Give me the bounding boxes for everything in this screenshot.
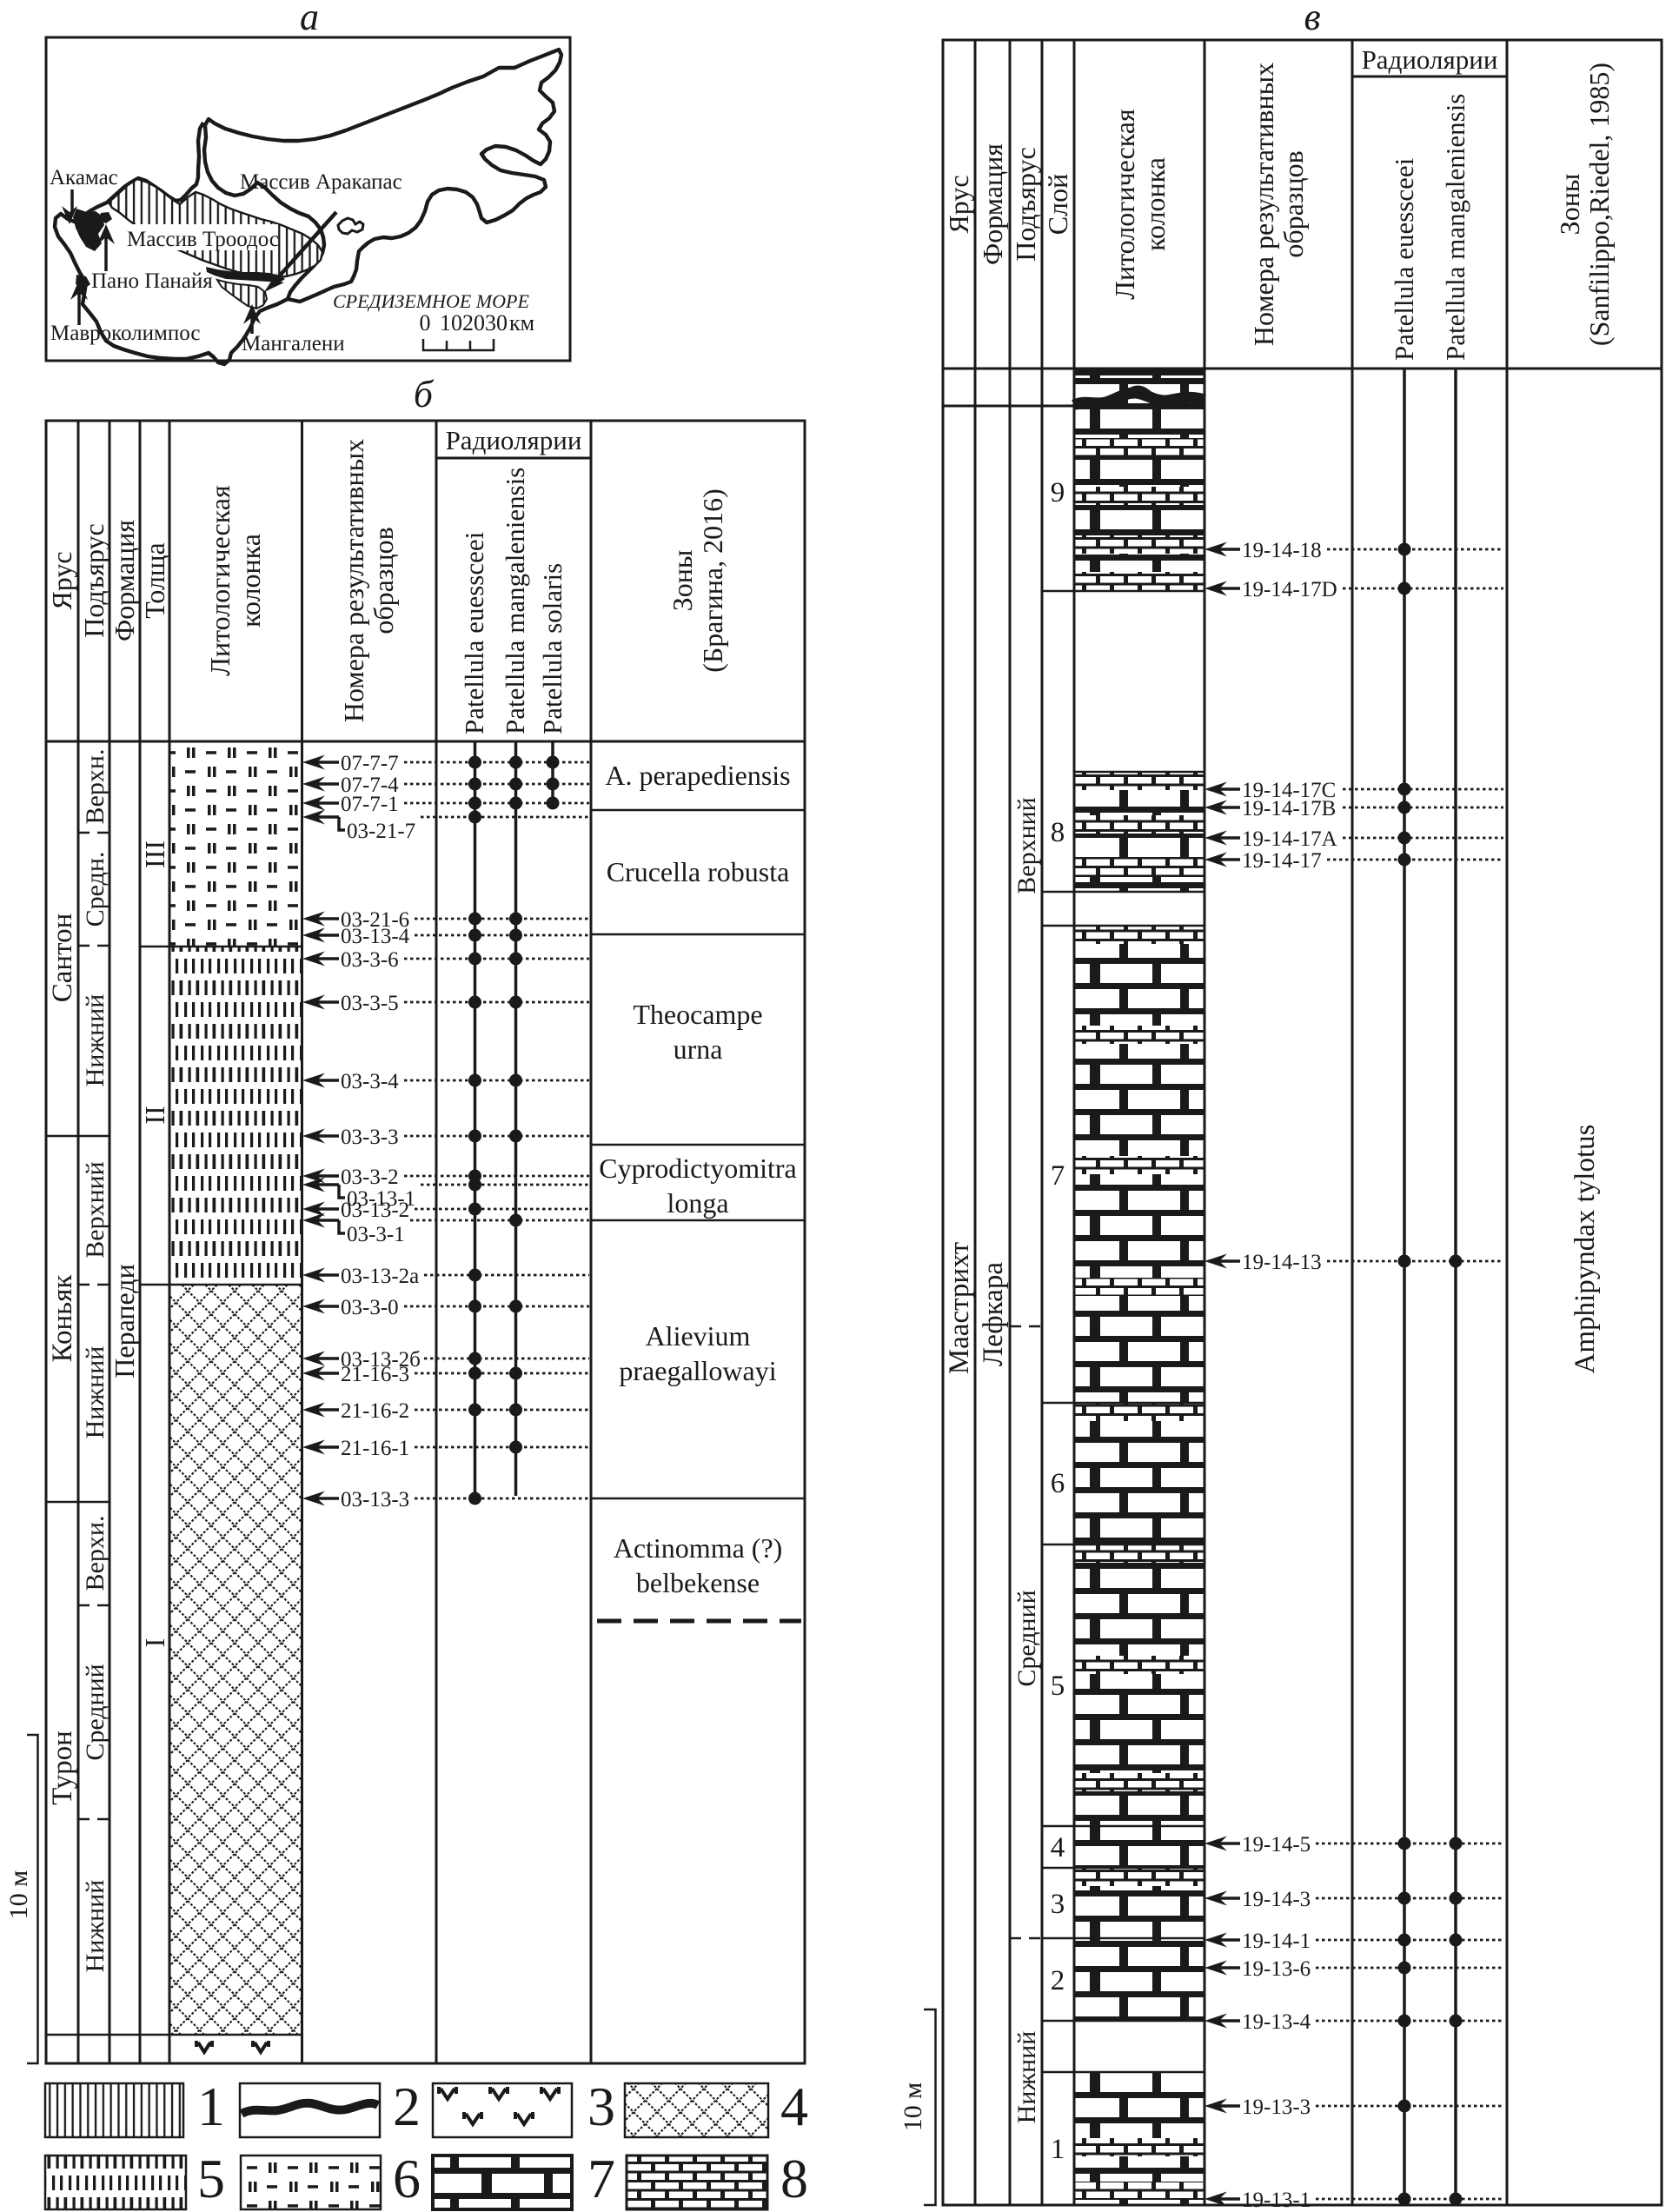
svg-text:Номера результативных: Номера результативных — [338, 439, 369, 722]
svg-text:II: II — [139, 1106, 170, 1124]
svg-text:Массив Аракапас: Массив Аракапас — [240, 170, 402, 194]
svg-text:19-14-5: 19-14-5 — [1242, 1833, 1311, 1857]
svg-text:Средний: Средний — [81, 1664, 109, 1760]
svg-text:Amphipyndax tylotus: Amphipyndax tylotus — [1569, 1125, 1601, 1374]
svg-text:Зоны: Зоны — [1554, 174, 1585, 236]
svg-text:03-3-4: 03-3-4 — [341, 1070, 399, 1093]
svg-text:1: 1 — [1051, 2134, 1065, 2165]
svg-text:19-14-17D: 19-14-17D — [1242, 578, 1337, 601]
svg-text:СРЕДИЗЕМНОЕ МОРЕ: СРЕДИЗЕМНОЕ МОРЕ — [333, 290, 529, 312]
svg-text:7: 7 — [587, 2148, 615, 2209]
svg-text:Пано Панайя: Пано Панайя — [91, 269, 213, 293]
svg-text:Мангалени: Мангалени — [242, 332, 345, 355]
svg-text:5: 5 — [197, 2148, 225, 2209]
svg-text:Верхний: Верхний — [1012, 797, 1041, 894]
svg-text:0: 0 — [420, 310, 431, 335]
svg-text:belbekense: belbekense — [636, 1567, 760, 1598]
svg-text:б: б — [414, 373, 435, 415]
svg-text:9: 9 — [1051, 477, 1065, 508]
svg-text:Верхи.: Верхи. — [81, 1516, 109, 1591]
svg-text:4: 4 — [780, 2076, 808, 2137]
svg-text:Литологическая: Литологическая — [204, 485, 236, 676]
svg-text:Theocampe: Theocampe — [633, 999, 762, 1030]
svg-text:21-16-1: 21-16-1 — [341, 1437, 409, 1460]
svg-text:Patellula euessceei: Patellula euessceei — [459, 531, 489, 734]
svg-text:03-13-2а: 03-13-2а — [341, 1265, 419, 1288]
svg-text:Лефкара: Лефкара — [978, 1262, 1009, 1366]
svg-text:Формация: Формация — [977, 143, 1008, 265]
svg-text:Перапеди: Перапеди — [109, 1264, 140, 1378]
svg-text:Верхн.: Верхн. — [81, 749, 109, 825]
svg-text:19-14-17A: 19-14-17A — [1242, 827, 1337, 851]
svg-text:Верхний: Верхний — [81, 1161, 109, 1259]
svg-text:Подъярус: Подъярус — [78, 523, 109, 638]
svg-text:Коньяк: Коньяк — [47, 1274, 78, 1363]
svg-text:5: 5 — [1051, 1671, 1065, 1702]
svg-text:(Sanfilippo,Riedel, 1985): (Sanfilippo,Riedel, 1985) — [1583, 63, 1615, 346]
svg-text:колонка: колонка — [1139, 157, 1171, 251]
svg-text:19-14-1: 19-14-1 — [1242, 1930, 1311, 1953]
svg-text:образцов: образцов — [1277, 150, 1309, 257]
svg-text:6: 6 — [1051, 1468, 1065, 1499]
svg-text:Сантон: Сантон — [47, 913, 78, 1002]
svg-text:Crucella robusta: Crucella robusta — [607, 856, 790, 887]
svg-text:03-3-1: 03-3-1 — [347, 1223, 405, 1246]
svg-text:8: 8 — [1051, 817, 1065, 848]
svg-text:Радиолярии: Радиолярии — [1362, 44, 1498, 75]
svg-text:Patellula euessceei: Patellula euessceei — [1389, 157, 1419, 361]
svg-text:Patellula solaris: Patellula solaris — [537, 563, 567, 734]
svg-text:Турон: Турон — [47, 1730, 78, 1805]
svg-text:Нижний: Нижний — [81, 1346, 109, 1439]
svg-text:21-16-3: 21-16-3 — [341, 1363, 409, 1386]
svg-text:19-14-17B: 19-14-17B — [1242, 797, 1336, 820]
svg-text:07-7-7: 07-7-7 — [341, 752, 399, 775]
svg-text:4: 4 — [1051, 1832, 1065, 1863]
svg-text:а: а — [300, 0, 319, 38]
svg-text:Средний: Средний — [1012, 1590, 1041, 1686]
svg-text:Формация: Формация — [109, 520, 140, 641]
svg-text:Нижний: Нижний — [81, 994, 109, 1087]
svg-text:10: 10 — [440, 310, 462, 335]
svg-text:2: 2 — [1051, 1965, 1065, 1996]
svg-text:Нижний: Нижний — [1012, 2031, 1041, 2124]
svg-text:1: 1 — [197, 2076, 225, 2137]
svg-text:19-13-3: 19-13-3 — [1242, 2096, 1311, 2119]
svg-text:19-13-1: 19-13-1 — [1242, 2189, 1311, 2212]
svg-text:Ярус: Ярус — [46, 551, 77, 609]
svg-text:колонка: колонка — [235, 534, 266, 628]
svg-text:Patellula mangaleniensis: Patellula mangaleniensis — [500, 468, 530, 734]
svg-text:2: 2 — [393, 2076, 421, 2137]
svg-text:(Брагина, 2016): (Брагина, 2016) — [697, 488, 728, 672]
svg-text:Мавроколимпос: Мавроколимпос — [50, 322, 200, 345]
svg-text:19-13-4: 19-13-4 — [1242, 2010, 1311, 2034]
svg-text:Маастрихт: Маастрихт — [944, 1242, 975, 1374]
svg-text:19-14-17: 19-14-17 — [1242, 849, 1322, 873]
svg-text:03-3-3: 03-3-3 — [341, 1126, 399, 1149]
svg-text:03-13-2: 03-13-2 — [341, 1199, 409, 1222]
svg-text:Зоны: Зоны — [667, 550, 698, 612]
svg-text:03-3-6: 03-3-6 — [341, 948, 399, 972]
svg-text:03-21-7: 03-21-7 — [347, 820, 415, 843]
svg-text:07-7-1: 07-7-1 — [341, 793, 399, 816]
svg-text:образцов: образцов — [368, 527, 399, 634]
svg-text:Толща: Толща — [139, 542, 170, 619]
svg-text:7: 7 — [1051, 1160, 1065, 1192]
svg-text:8: 8 — [780, 2148, 808, 2209]
svg-text:Номера результативных: Номера результативных — [1248, 63, 1279, 346]
svg-text:Акамас: Акамас — [50, 166, 118, 189]
svg-text:03-3-2: 03-3-2 — [341, 1166, 399, 1189]
svg-text:19-14-18: 19-14-18 — [1242, 539, 1322, 562]
svg-text:III: III — [139, 840, 170, 868]
svg-text:19-14-13: 19-14-13 — [1242, 1251, 1322, 1274]
svg-text:21-16-2: 21-16-2 — [341, 1399, 409, 1423]
svg-text:10 м: 10 м — [4, 1870, 33, 1920]
svg-text:Слой: Слой — [1042, 174, 1073, 235]
svg-text:Массив Троодос: Массив Троодос — [127, 228, 279, 251]
svg-text:Нижний: Нижний — [81, 1880, 109, 1973]
svg-text:Cyprodictyomitra: Cyprodictyomitra — [599, 1152, 797, 1184]
svg-text:19-13-6: 19-13-6 — [1242, 1957, 1311, 1981]
svg-text:03-13-3: 03-13-3 — [341, 1488, 409, 1511]
svg-text:Литологическая: Литологическая — [1109, 109, 1140, 300]
svg-text:в: в — [1304, 0, 1320, 38]
svg-text:Ярус: Ярус — [943, 175, 974, 233]
svg-text:longa: longa — [667, 1187, 728, 1219]
svg-text:03-3-5: 03-3-5 — [341, 992, 399, 1015]
svg-text:I: I — [139, 1638, 170, 1648]
svg-text:03-13-4: 03-13-4 — [341, 925, 410, 948]
svg-text:6: 6 — [393, 2148, 421, 2209]
svg-text:км: км — [509, 310, 534, 335]
svg-text:Alievium: Alievium — [646, 1320, 751, 1352]
svg-text:praegallowayi: praegallowayi — [619, 1355, 776, 1386]
svg-text:Средн.: Средн. — [81, 852, 109, 927]
svg-text:A. perapediensis: A. perapediensis — [605, 760, 790, 791]
svg-text:Радиолярии: Радиолярии — [446, 425, 582, 455]
svg-text:urna: urna — [674, 1033, 723, 1065]
svg-text:Patellula mangaleniensis: Patellula mangaleniensis — [1440, 94, 1470, 361]
svg-text:3: 3 — [587, 2076, 615, 2137]
svg-text:19-14-3: 19-14-3 — [1242, 1888, 1311, 1911]
svg-text:Actinomma (?): Actinomma (?) — [614, 1532, 783, 1564]
svg-text:Подъярус: Подъярус — [1010, 147, 1041, 262]
svg-text:30: 30 — [485, 310, 508, 335]
svg-text:3: 3 — [1051, 1889, 1065, 1920]
svg-text:10 м: 10 м — [899, 2082, 927, 2132]
svg-text:20: 20 — [462, 310, 485, 335]
svg-text:03-3-0: 03-3-0 — [341, 1296, 399, 1319]
